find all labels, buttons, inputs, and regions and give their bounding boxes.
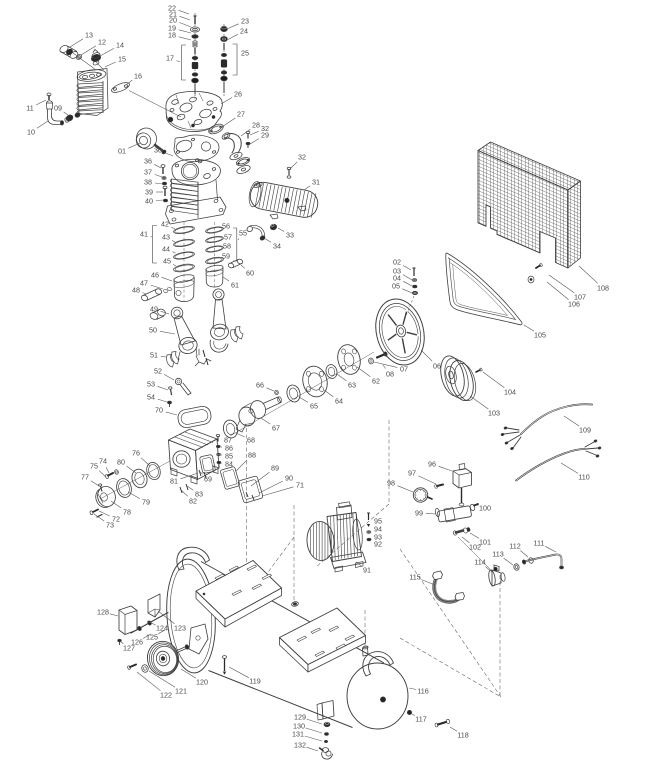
svg-text:44: 44 (162, 245, 170, 254)
svg-text:97: 97 (408, 469, 416, 478)
svg-text:123: 123 (174, 624, 186, 633)
svg-text:122: 122 (160, 691, 172, 700)
svg-text:94: 94 (374, 525, 382, 534)
svg-text:127: 127 (123, 644, 135, 653)
svg-text:111: 111 (534, 539, 545, 548)
svg-text:16: 16 (134, 72, 142, 81)
svg-text:26: 26 (234, 90, 242, 99)
svg-text:09: 09 (54, 104, 62, 113)
svg-text:118: 118 (457, 731, 468, 740)
svg-text:74: 74 (99, 457, 107, 466)
svg-text:08: 08 (386, 370, 394, 379)
svg-text:110: 110 (578, 473, 589, 482)
svg-text:115: 115 (409, 573, 420, 582)
svg-text:24: 24 (240, 27, 248, 36)
svg-text:12: 12 (98, 38, 106, 47)
svg-text:112: 112 (509, 542, 520, 551)
svg-text:34: 34 (273, 242, 281, 251)
svg-text:75: 75 (90, 462, 98, 471)
svg-text:65: 65 (310, 402, 318, 411)
svg-text:61: 61 (231, 281, 239, 290)
svg-text:60: 60 (246, 269, 254, 278)
svg-text:10: 10 (27, 128, 35, 137)
svg-text:103: 103 (488, 409, 500, 418)
svg-text:108: 108 (597, 284, 609, 293)
svg-text:49: 49 (150, 305, 158, 314)
svg-text:14: 14 (116, 41, 124, 50)
svg-text:59: 59 (222, 252, 230, 261)
svg-text:56: 56 (222, 222, 230, 231)
svg-text:109: 109 (579, 426, 591, 435)
svg-text:105: 105 (534, 331, 546, 340)
svg-text:43: 43 (162, 233, 170, 242)
svg-text:85: 85 (225, 452, 233, 461)
svg-text:58: 58 (223, 242, 231, 251)
svg-text:36: 36 (144, 157, 152, 166)
svg-text:52: 52 (154, 367, 162, 376)
svg-text:28: 28 (252, 121, 260, 130)
svg-text:48: 48 (132, 286, 140, 295)
svg-text:11: 11 (26, 104, 33, 113)
svg-text:93: 93 (374, 533, 382, 542)
svg-text:06: 06 (433, 362, 441, 371)
svg-text:40: 40 (145, 197, 153, 206)
svg-text:17: 17 (166, 54, 174, 63)
svg-text:131: 131 (292, 730, 304, 739)
svg-text:67: 67 (272, 424, 280, 433)
svg-text:55: 55 (239, 229, 247, 238)
svg-text:50: 50 (149, 326, 157, 335)
svg-text:68: 68 (247, 436, 255, 445)
svg-text:42: 42 (161, 220, 169, 229)
svg-text:51: 51 (150, 351, 158, 360)
svg-text:113: 113 (492, 550, 503, 559)
svg-text:76: 76 (132, 449, 140, 458)
svg-text:121: 121 (175, 687, 187, 696)
svg-text:47: 47 (140, 279, 148, 288)
svg-text:15: 15 (118, 55, 126, 64)
svg-text:120: 120 (196, 678, 208, 687)
svg-text:95: 95 (374, 517, 382, 526)
svg-text:107: 107 (574, 293, 586, 302)
svg-text:87: 87 (224, 436, 232, 445)
svg-text:57: 57 (224, 233, 232, 242)
svg-text:32: 32 (261, 124, 269, 133)
svg-text:27: 27 (237, 110, 245, 119)
svg-text:02: 02 (393, 258, 401, 267)
svg-text:80: 80 (117, 458, 125, 467)
svg-text:63: 63 (348, 381, 356, 390)
svg-text:81: 81 (170, 477, 178, 486)
svg-text:125: 125 (146, 633, 158, 642)
svg-text:32: 32 (298, 153, 306, 162)
svg-text:91: 91 (363, 566, 371, 575)
svg-text:84: 84 (225, 460, 233, 469)
svg-text:45: 45 (163, 257, 171, 266)
svg-text:89: 89 (271, 464, 279, 473)
svg-text:38: 38 (144, 178, 152, 187)
svg-text:37: 37 (144, 168, 152, 177)
svg-text:99: 99 (415, 509, 423, 518)
svg-text:19: 19 (168, 24, 176, 33)
svg-text:69: 69 (204, 475, 212, 484)
svg-text:77: 77 (81, 473, 89, 482)
svg-text:117: 117 (415, 715, 426, 724)
svg-text:46: 46 (151, 271, 159, 280)
svg-text:78: 78 (123, 508, 131, 517)
svg-text:98: 98 (387, 479, 395, 488)
svg-text:62: 62 (372, 377, 380, 386)
svg-text:114: 114 (474, 558, 485, 567)
svg-text:73: 73 (106, 521, 114, 530)
svg-text:30: 30 (154, 146, 162, 155)
svg-text:116: 116 (417, 687, 428, 696)
svg-text:23: 23 (241, 17, 249, 26)
svg-text:104: 104 (504, 388, 516, 397)
svg-text:33: 33 (286, 231, 294, 240)
svg-text:86: 86 (225, 444, 233, 453)
svg-text:96: 96 (428, 460, 436, 469)
svg-text:124: 124 (156, 624, 168, 633)
svg-text:64: 64 (335, 397, 343, 406)
svg-text:102: 102 (469, 543, 481, 552)
svg-text:41: 41 (140, 230, 148, 239)
svg-text:05: 05 (392, 282, 400, 291)
svg-text:128: 128 (97, 608, 109, 617)
svg-text:54: 54 (147, 393, 155, 402)
svg-text:70: 70 (155, 406, 163, 415)
svg-text:90: 90 (285, 474, 293, 483)
svg-text:31: 31 (312, 178, 320, 187)
svg-text:25: 25 (241, 49, 249, 58)
svg-text:22: 22 (168, 4, 176, 13)
svg-text:39: 39 (145, 188, 153, 197)
svg-text:13: 13 (85, 31, 93, 40)
svg-text:66: 66 (256, 381, 264, 390)
svg-text:83: 83 (195, 490, 203, 499)
svg-text:88: 88 (248, 451, 256, 460)
svg-text:53: 53 (147, 380, 155, 389)
svg-text:129: 129 (294, 713, 306, 722)
svg-text:132: 132 (294, 741, 306, 750)
svg-text:01: 01 (118, 147, 126, 156)
svg-text:100: 100 (479, 504, 491, 513)
svg-text:79: 79 (142, 498, 150, 507)
svg-text:71: 71 (296, 481, 304, 490)
svg-text:07: 07 (400, 365, 408, 374)
svg-text:119: 119 (249, 677, 260, 686)
